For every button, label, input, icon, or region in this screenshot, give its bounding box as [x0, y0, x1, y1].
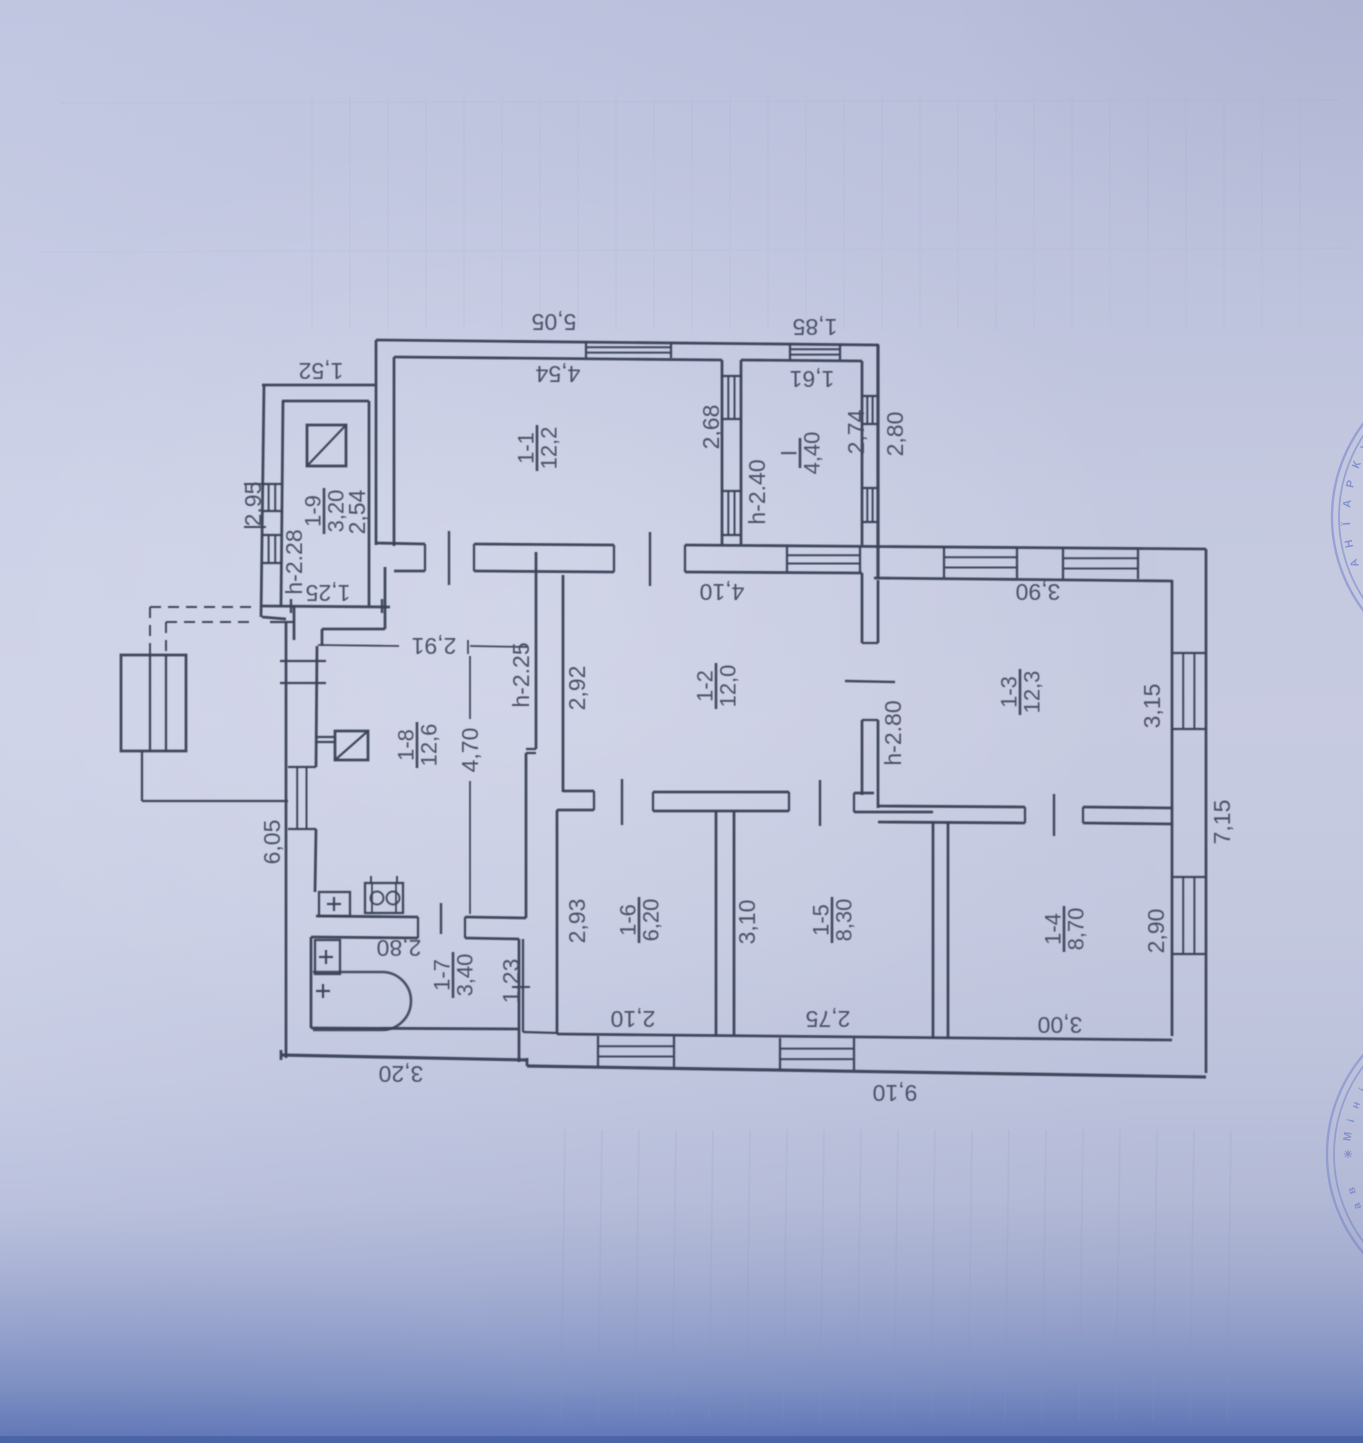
svg-text:1-7: 1-7 [430, 959, 455, 991]
svg-text:2,80: 2,80 [377, 935, 422, 961]
svg-text:3,15: 3,15 [1139, 684, 1165, 729]
svg-text:1,61: 1,61 [790, 366, 835, 392]
svg-text:4,40: 4,40 [800, 432, 825, 475]
svg-text:12,0: 12,0 [716, 665, 741, 708]
svg-text:2,54: 2,54 [344, 489, 370, 534]
svg-text:2,80: 2,80 [882, 412, 908, 457]
svg-text:2,95: 2,95 [240, 482, 266, 527]
svg-text:1-8: 1-8 [394, 729, 419, 761]
svg-text:4,54: 4,54 [535, 361, 580, 387]
svg-text:2,75: 2,75 [806, 1006, 851, 1032]
svg-text:6,05: 6,05 [259, 820, 285, 865]
svg-text:2,10: 2,10 [611, 1006, 656, 1032]
svg-text:9,10: 9,10 [873, 1080, 918, 1106]
svg-text:1-1: 1-1 [514, 432, 539, 464]
svg-text:1,23: 1,23 [498, 959, 524, 1004]
svg-text:2,92: 2,92 [564, 666, 590, 711]
svg-text:1-4: 1-4 [1041, 913, 1066, 945]
svg-text:2,74: 2,74 [843, 409, 869, 454]
svg-text:12,6: 12,6 [417, 724, 442, 767]
svg-text:h-2.28: h-2.28 [281, 529, 307, 594]
svg-text:М: М [1342, 1131, 1355, 1142]
svg-text:а: а [1351, 1200, 1363, 1211]
svg-text:1-3: 1-3 [997, 676, 1022, 708]
svg-text:Н: Н [1343, 539, 1356, 549]
svg-text:3,00: 3,00 [1038, 1012, 1083, 1038]
svg-text:1-5: 1-5 [809, 904, 834, 936]
svg-text:h-2.25: h-2.25 [508, 642, 534, 707]
svg-text:2,93: 2,93 [564, 899, 590, 944]
svg-text:4,70: 4,70 [457, 728, 483, 773]
svg-text:Р: Р [1344, 479, 1357, 489]
svg-text:1,25: 1,25 [306, 580, 351, 606]
svg-text:5,05: 5,05 [532, 309, 577, 335]
svg-text:1-9: 1-9 [301, 495, 326, 527]
svg-text:7,15: 7,15 [1209, 800, 1235, 845]
svg-text:12,2: 12,2 [537, 427, 562, 470]
svg-text:1,52: 1,52 [299, 358, 344, 384]
svg-text:К: К [1350, 459, 1363, 470]
svg-text:А: А [1348, 557, 1362, 569]
svg-text:h-2.80: h-2.80 [880, 700, 906, 765]
svg-text:h-2.40: h-2.40 [744, 459, 770, 524]
svg-text:8,70: 8,70 [1064, 908, 1089, 951]
svg-text:1-6: 1-6 [616, 904, 641, 936]
svg-text:3,10: 3,10 [734, 900, 760, 945]
svg-text:Ї: Ї [1340, 521, 1353, 527]
svg-text:2,90: 2,90 [1143, 909, 1169, 954]
svg-text:6,20: 6,20 [639, 899, 664, 942]
svg-text:12,3: 12,3 [1020, 671, 1045, 714]
svg-text:3,40: 3,40 [453, 954, 478, 997]
svg-text:8,30: 8,30 [832, 899, 857, 942]
svg-text:✳: ✳ [1343, 1149, 1352, 1161]
svg-text:I: I [777, 450, 802, 456]
svg-text:і: і [1357, 1086, 1363, 1094]
svg-text:н: н [1349, 1100, 1363, 1111]
svg-text:4,10: 4,10 [700, 579, 745, 605]
svg-text:3,90: 3,90 [1016, 579, 1061, 605]
svg-text:3,20: 3,20 [379, 1061, 424, 1087]
svg-text:1-2: 1-2 [693, 670, 718, 702]
svg-text:1,85: 1,85 [793, 314, 838, 340]
svg-text:і: і [1345, 1118, 1357, 1124]
svg-text:2,68: 2,68 [698, 405, 724, 450]
svg-text:в: в [1345, 1186, 1358, 1196]
svg-text:А: А [1341, 499, 1354, 508]
svg-text:2,91: 2,91 [412, 633, 457, 659]
